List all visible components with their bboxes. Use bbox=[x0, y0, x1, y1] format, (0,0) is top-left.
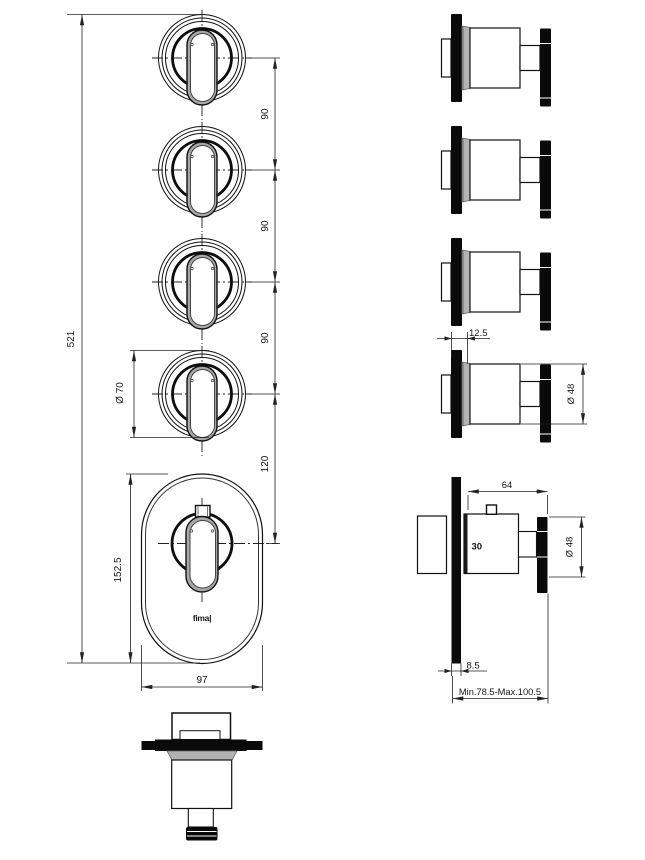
drawing-svg: fima| 521 90 90 90 120 bbox=[0, 0, 645, 860]
dim-valve-handle-diameter-label: Ø 48 bbox=[565, 537, 576, 558]
handle-neck-top-view bbox=[180, 731, 220, 740]
dim-plate-offset-label: 12.5 bbox=[469, 328, 488, 339]
dim-total-height-label: 521 bbox=[66, 330, 77, 347]
plate-side-edge bbox=[452, 477, 462, 664]
valve-body-top-view bbox=[172, 760, 232, 809]
plate-edge bbox=[155, 740, 247, 752]
dim-spacing-2-label: 90 bbox=[260, 220, 271, 232]
dim-valve-offset-label: 120 bbox=[260, 455, 271, 472]
dim-spacing-3-label: 90 bbox=[260, 332, 271, 344]
connection-stem bbox=[188, 809, 213, 828]
brand-logo: fima| bbox=[193, 613, 211, 623]
dim-plate-thickness-label: 8.5 bbox=[467, 661, 480, 672]
dim-knob-diameter-side-label: Ø 48 bbox=[566, 384, 577, 405]
dim-valve-depth-label: 64 bbox=[502, 480, 513, 491]
dim-plate-height-label: 152.5 bbox=[113, 557, 124, 582]
threaded-connector bbox=[186, 827, 218, 841]
temperature-mark: 30 bbox=[472, 542, 483, 553]
dim-install-range-label: Min.78.5-Max.100.5 bbox=[459, 687, 541, 697]
valve-tab-side bbox=[487, 505, 497, 514]
flange-taper bbox=[167, 751, 237, 760]
valve-handle-side bbox=[537, 517, 548, 593]
valve-rear-body bbox=[418, 516, 447, 574]
dim-knob-diameter-label: Ø 70 bbox=[115, 382, 126, 404]
valve-stem-side bbox=[519, 532, 537, 558]
valve-dial-ring bbox=[465, 515, 468, 574]
dim-plate-width-label: 97 bbox=[196, 675, 208, 686]
technical-drawing-sheet: fima| 521 90 90 90 120 bbox=[0, 0, 645, 860]
dim-spacing-1-label: 90 bbox=[260, 108, 271, 120]
